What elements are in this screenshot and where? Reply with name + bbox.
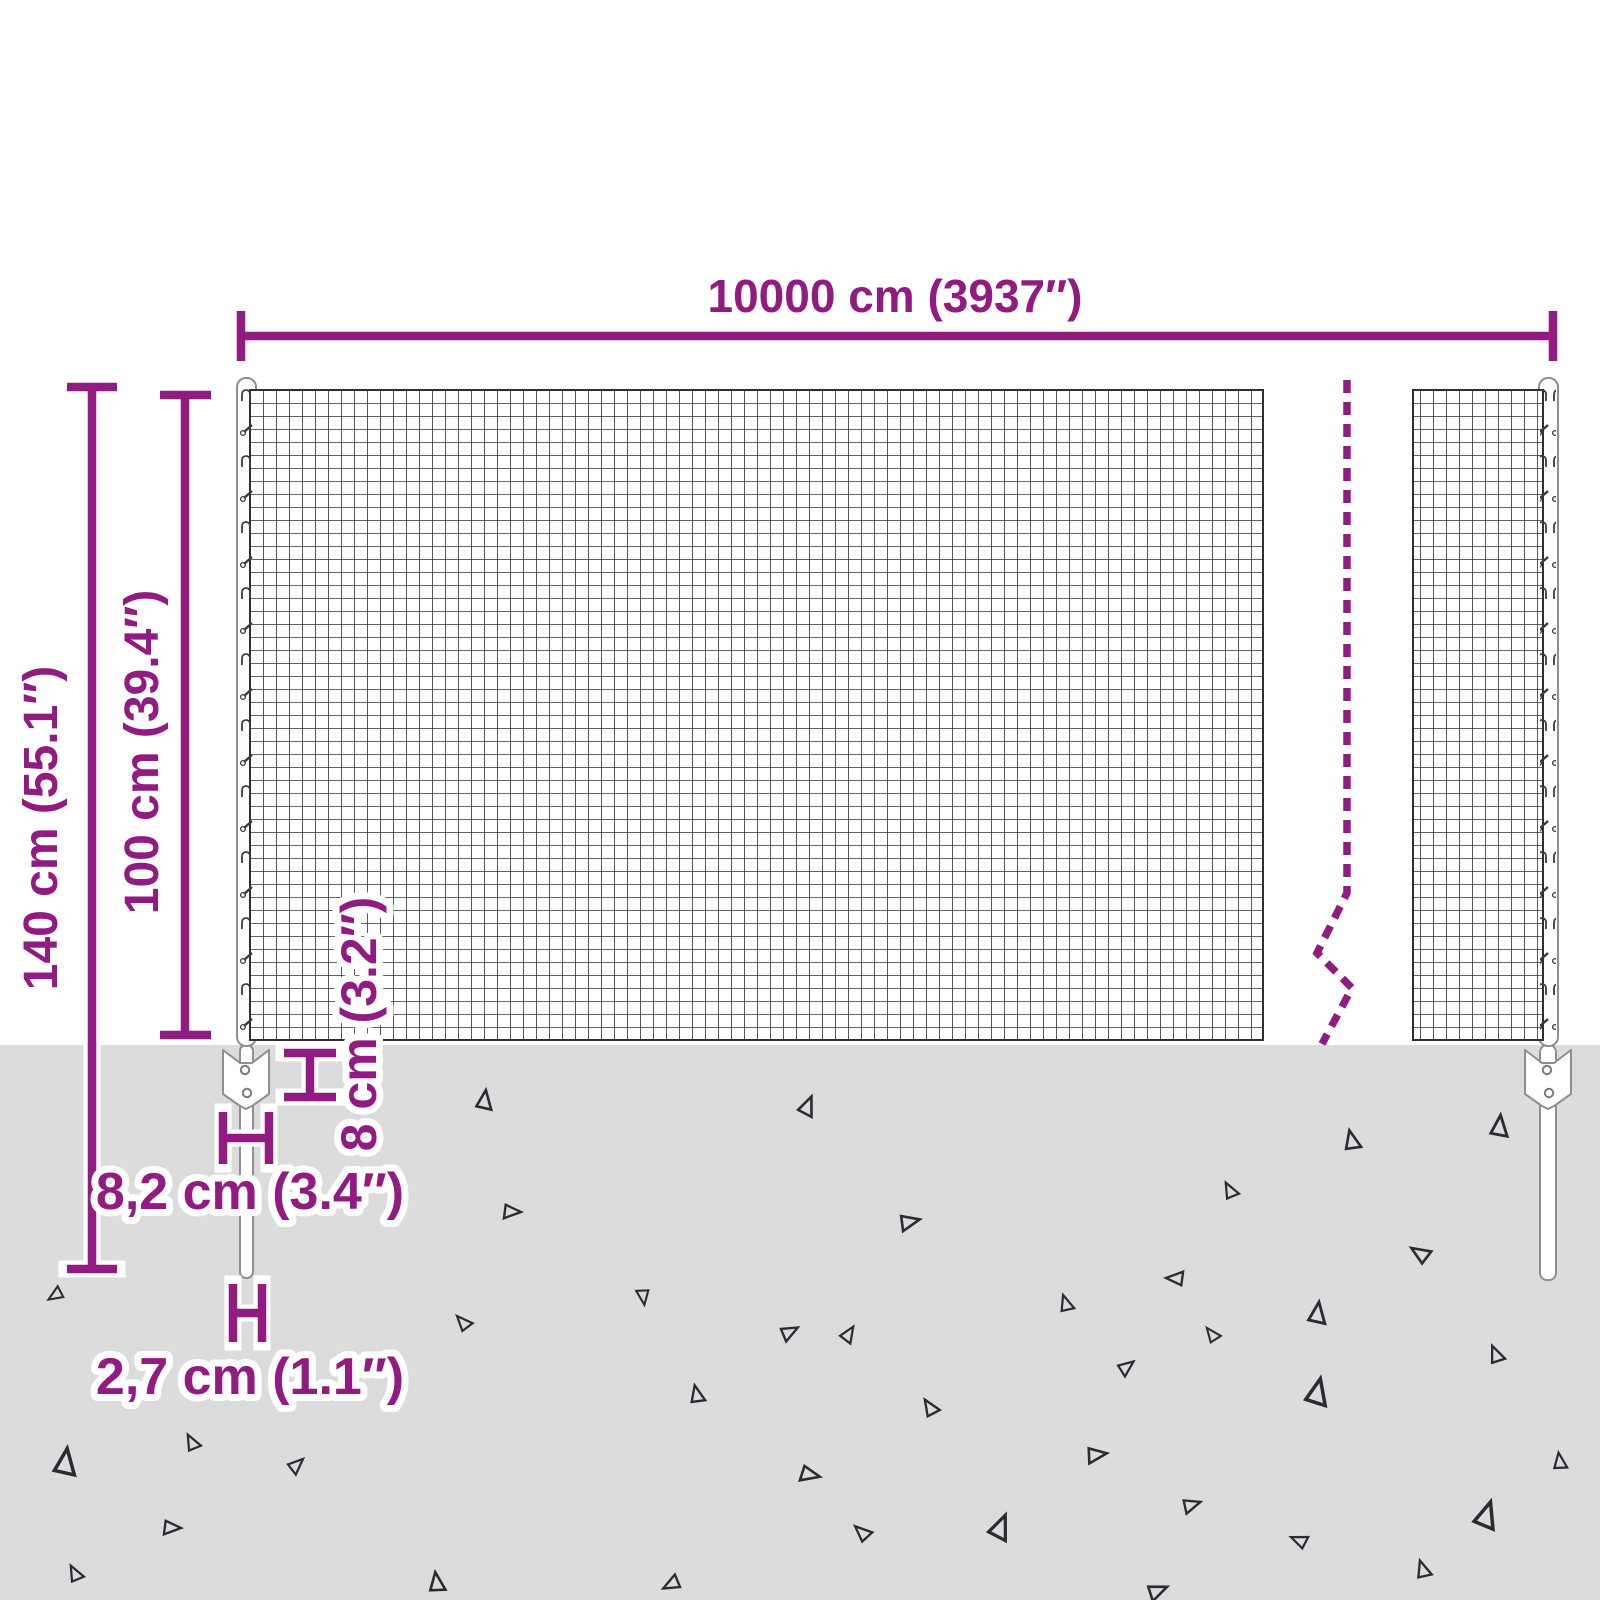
total-width-label: 10000 cm (3937″): [708, 270, 1083, 322]
bracket-width-label: 8,2 cm (3.4″): [96, 1163, 404, 1221]
left-post-clips: [238, 385, 254, 1040]
total-height-label: 140 cm (55.1″): [15, 666, 68, 991]
mesh-panel-right: [1413, 390, 1543, 1040]
right-post-clips: [1540, 385, 1556, 1040]
post-width-label: 2,7 cm (1.1″): [96, 1348, 404, 1406]
bracket-height-label: 8 cm (3.2″): [331, 897, 387, 1152]
fence-dimension-diagram: 10000 cm (3937″) 140 cm (55.1″) 100 cm (…: [0, 0, 1600, 1600]
length-break-dashed-line: [1317, 380, 1352, 1044]
mesh-panel-main: [250, 390, 1263, 1040]
diagram-canvas: 10000 cm (3937″) 140 cm (55.1″) 100 cm (…: [0, 0, 1600, 1600]
mesh-height-label: 100 cm (39.4″): [116, 590, 169, 915]
